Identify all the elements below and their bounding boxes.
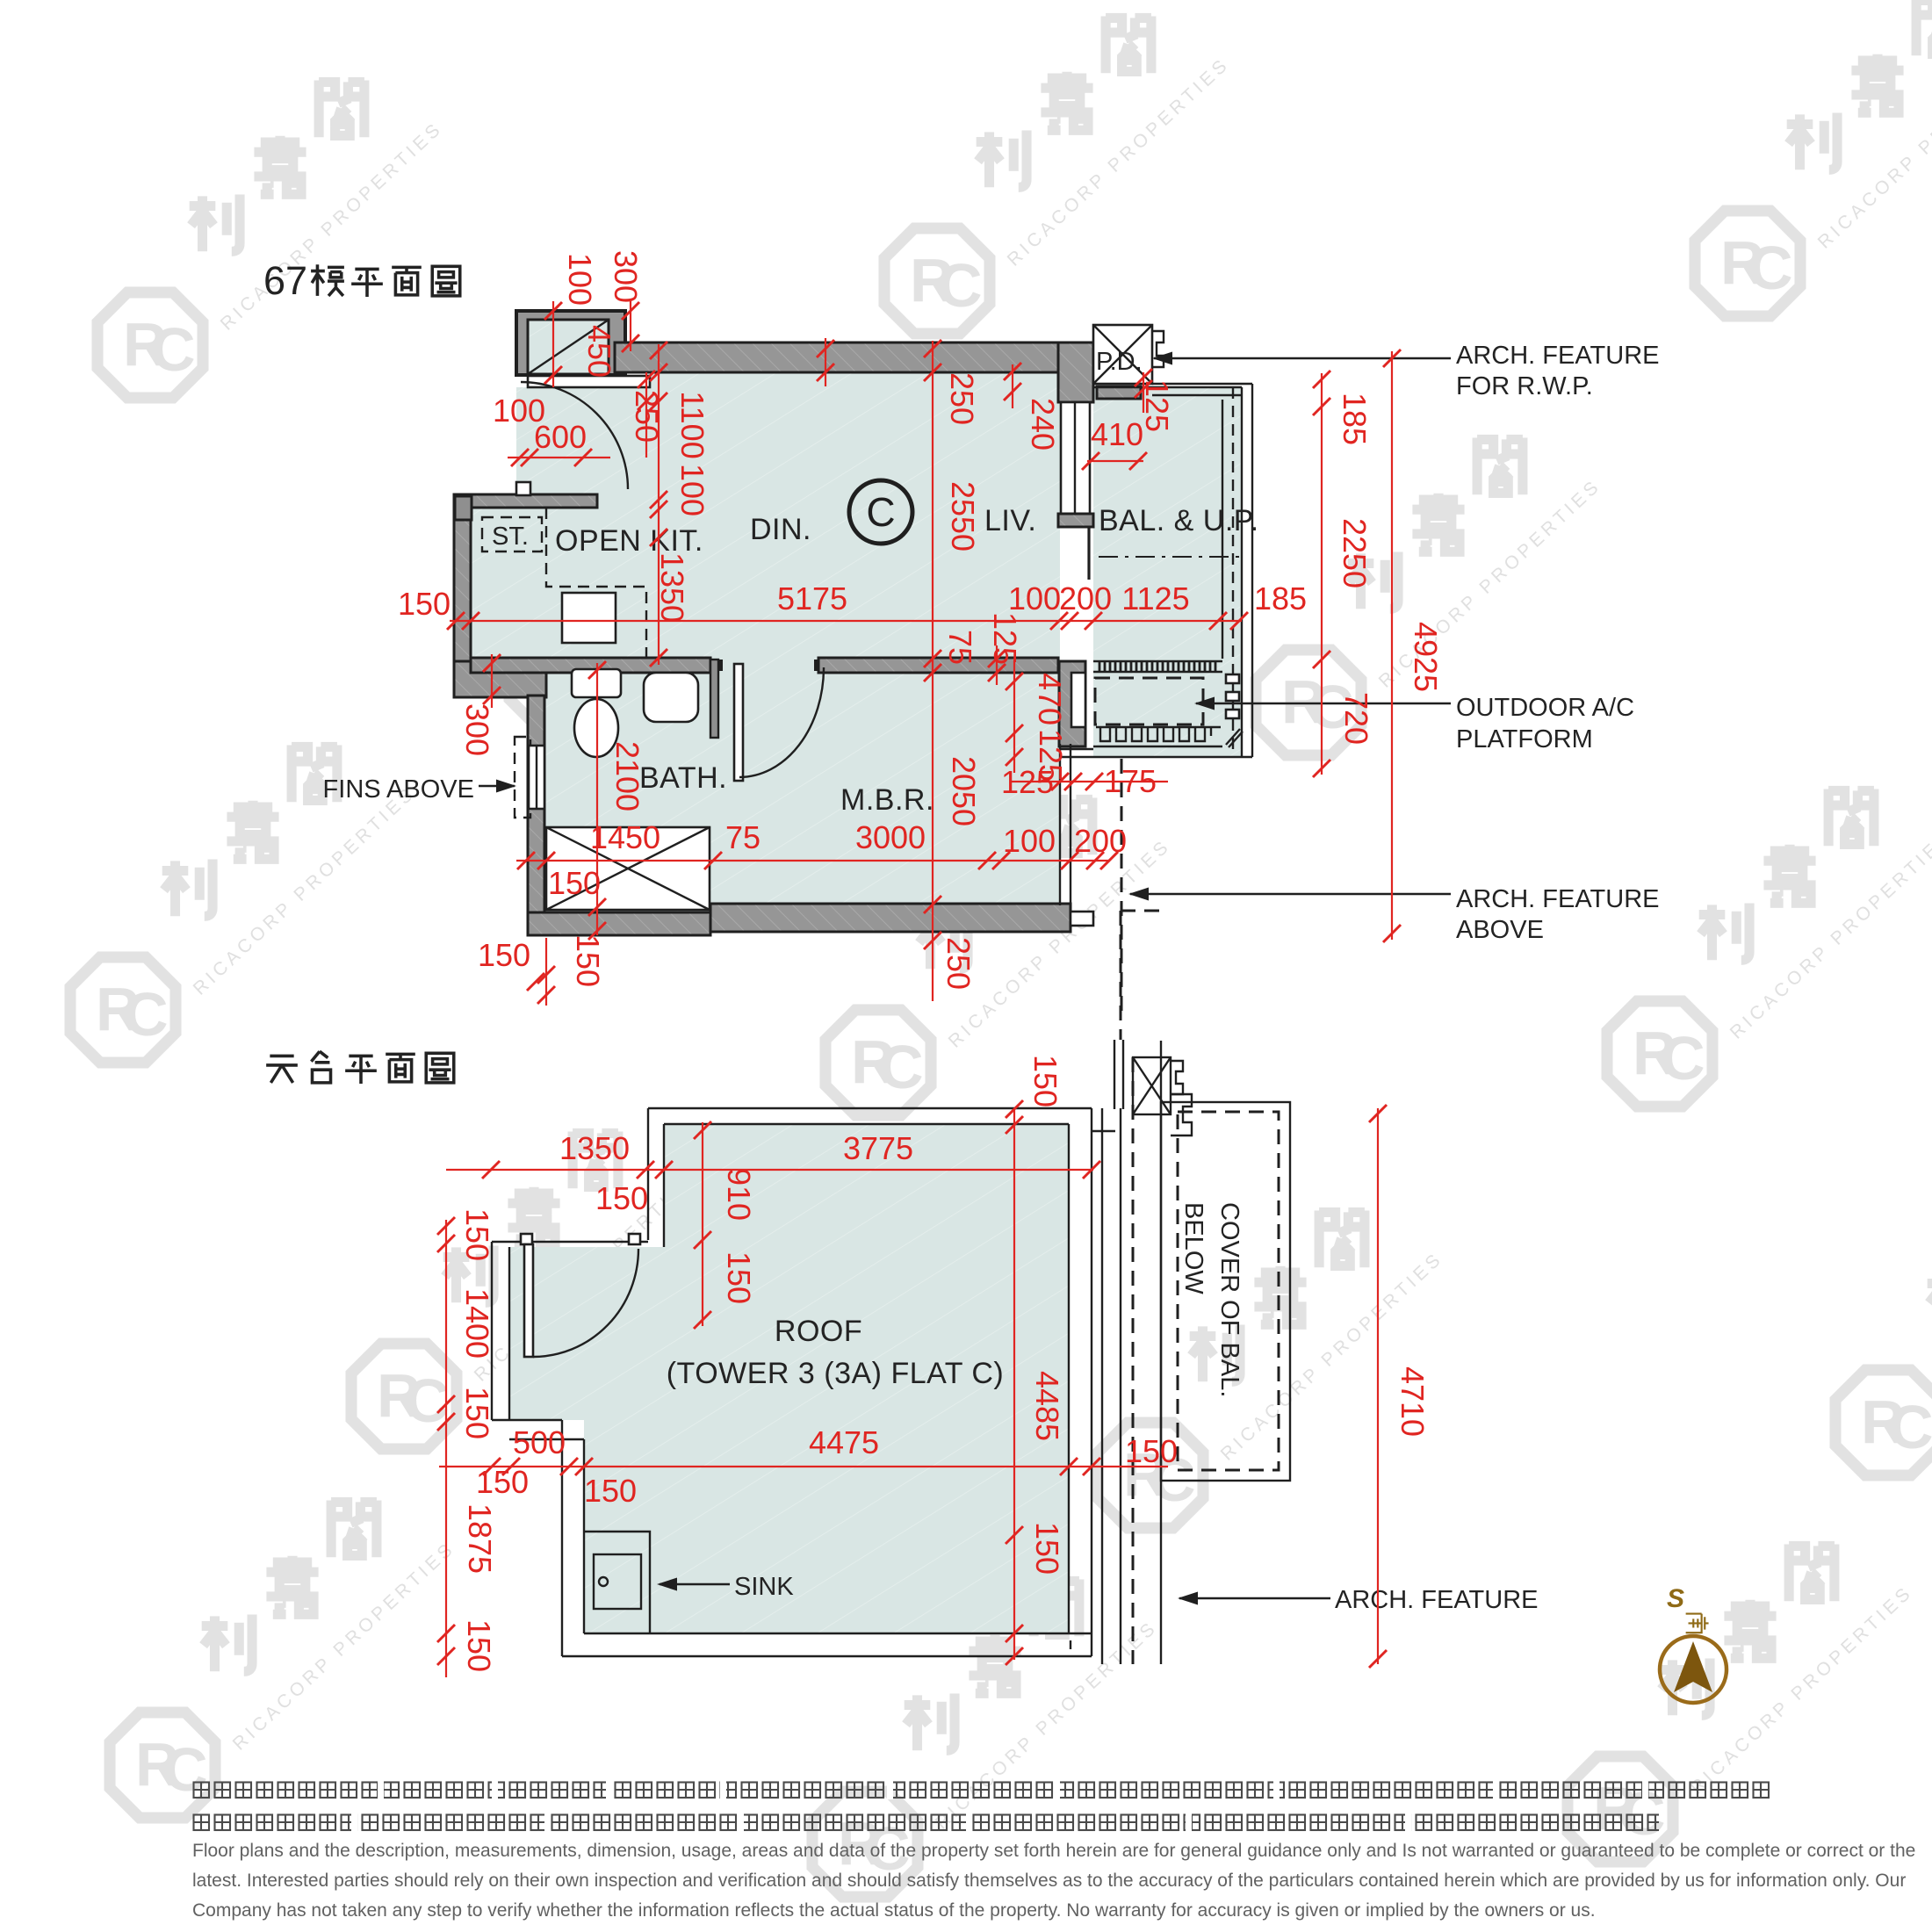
svg-text:100: 100 [674, 464, 710, 516]
svg-text:720: 720 [1338, 692, 1374, 745]
svg-text:3775: 3775 [843, 1130, 913, 1166]
svg-text:BATH.: BATH. [639, 761, 727, 795]
svg-text:470: 470 [1032, 673, 1068, 725]
svg-text:BELOW: BELOW [1179, 1202, 1207, 1294]
svg-text:4485: 4485 [1029, 1371, 1065, 1441]
svg-text:P.D.: P.D. [1096, 348, 1143, 376]
svg-text:150: 150 [478, 937, 530, 973]
svg-text:ST.: ST. [492, 523, 529, 551]
svg-text:250: 250 [941, 937, 977, 990]
svg-text:ROOF: ROOF [775, 1315, 862, 1348]
svg-text:600: 600 [534, 419, 587, 455]
svg-text:150: 150 [595, 1180, 648, 1216]
svg-text:150: 150 [721, 1251, 757, 1304]
svg-text:M.B.R.: M.B.R. [840, 783, 934, 817]
svg-text:150: 150 [476, 1464, 529, 1500]
svg-text:1875: 1875 [462, 1503, 498, 1574]
svg-text:latest. Interested parties sho: latest. Interested parties should rely o… [192, 1871, 1906, 1891]
svg-text:4710: 4710 [1395, 1366, 1431, 1437]
svg-text:S: S [1667, 1584, 1684, 1613]
svg-text:300: 300 [459, 703, 495, 756]
svg-text:200: 200 [1074, 823, 1127, 859]
svg-text:67: 67 [263, 258, 307, 303]
svg-text:OUTDOOR A/C: OUTDOOR A/C [1456, 694, 1634, 722]
svg-text:1100: 1100 [674, 391, 710, 458]
svg-text:4475: 4475 [809, 1424, 879, 1460]
svg-text:1400: 1400 [459, 1288, 495, 1359]
svg-text:PLATFORM: PLATFORM [1456, 725, 1593, 753]
svg-text:175: 175 [1104, 763, 1157, 799]
svg-text:2050: 2050 [946, 756, 982, 826]
svg-text:250: 250 [944, 372, 980, 425]
svg-text:150: 150 [584, 1473, 637, 1509]
svg-text:BAL. & U.P.: BAL. & U.P. [1099, 504, 1259, 537]
svg-text:ABOVE: ABOVE [1456, 916, 1544, 944]
svg-text:250: 250 [629, 390, 665, 443]
svg-text:150: 150 [570, 934, 606, 987]
svg-text:410: 410 [1091, 416, 1143, 452]
svg-text:FOR R.W.P.: FOR R.W.P. [1456, 372, 1593, 400]
svg-text:C: C [866, 489, 895, 535]
svg-text:150: 150 [461, 1619, 497, 1672]
svg-text:100: 100 [1003, 823, 1056, 859]
svg-text:150: 150 [548, 865, 601, 901]
svg-text:4925: 4925 [1408, 622, 1444, 692]
svg-text:240: 240 [1025, 398, 1061, 451]
svg-text:1125: 1125 [1121, 580, 1189, 616]
svg-text:150: 150 [1125, 1433, 1178, 1469]
svg-text:75: 75 [725, 819, 761, 855]
svg-text:Company has not taken any step: Company has not taken any step to verify… [192, 1900, 1596, 1921]
svg-text:SINK: SINK [734, 1573, 794, 1601]
svg-text:1450: 1450 [590, 819, 660, 855]
svg-text:150: 150 [398, 586, 451, 622]
svg-text:Floor plans and the descriptio: Floor plans and the description, measure… [192, 1841, 1915, 1861]
svg-text:1350: 1350 [654, 552, 690, 623]
svg-text:DIN.: DIN. [750, 513, 811, 546]
svg-text:125: 125 [1033, 729, 1069, 782]
svg-text:ARCH. FEATURE: ARCH. FEATURE [1456, 342, 1659, 370]
svg-text:3000: 3000 [855, 819, 926, 855]
svg-text:100: 100 [562, 253, 598, 306]
svg-text:125: 125 [1139, 379, 1175, 432]
svg-text:LIV.: LIV. [984, 504, 1036, 537]
svg-text:150: 150 [1029, 1522, 1065, 1575]
svg-text:ARCH. FEATURE: ARCH. FEATURE [1335, 1586, 1538, 1614]
svg-text:75: 75 [942, 630, 978, 665]
svg-text:100: 100 [1008, 580, 1061, 616]
svg-text:150: 150 [459, 1208, 495, 1261]
svg-text:1350: 1350 [559, 1130, 630, 1166]
svg-text:5175: 5175 [777, 580, 847, 616]
svg-text:910: 910 [721, 1168, 757, 1221]
svg-text:200: 200 [1059, 580, 1112, 616]
svg-text:125: 125 [987, 612, 1023, 665]
svg-text:(TOWER 3 (3A) FLAT C): (TOWER 3 (3A) FLAT C) [667, 1357, 1005, 1390]
svg-text:FINS ABOVE: FINS ABOVE [323, 775, 474, 804]
svg-text:COVER OF BAL.: COVER OF BAL. [1215, 1202, 1244, 1397]
svg-text:150: 150 [1027, 1055, 1063, 1107]
svg-text:300: 300 [608, 250, 644, 303]
svg-text:185: 185 [1254, 580, 1307, 616]
svg-text:185: 185 [1337, 393, 1373, 445]
svg-text:500: 500 [513, 1424, 566, 1460]
svg-text:2250: 2250 [1337, 518, 1373, 588]
svg-text:2100: 2100 [609, 741, 645, 811]
svg-text:ARCH. FEATURE: ARCH. FEATURE [1456, 885, 1659, 913]
svg-text:150: 150 [459, 1387, 495, 1439]
svg-text:450: 450 [581, 325, 617, 378]
svg-text:2550: 2550 [945, 481, 981, 551]
